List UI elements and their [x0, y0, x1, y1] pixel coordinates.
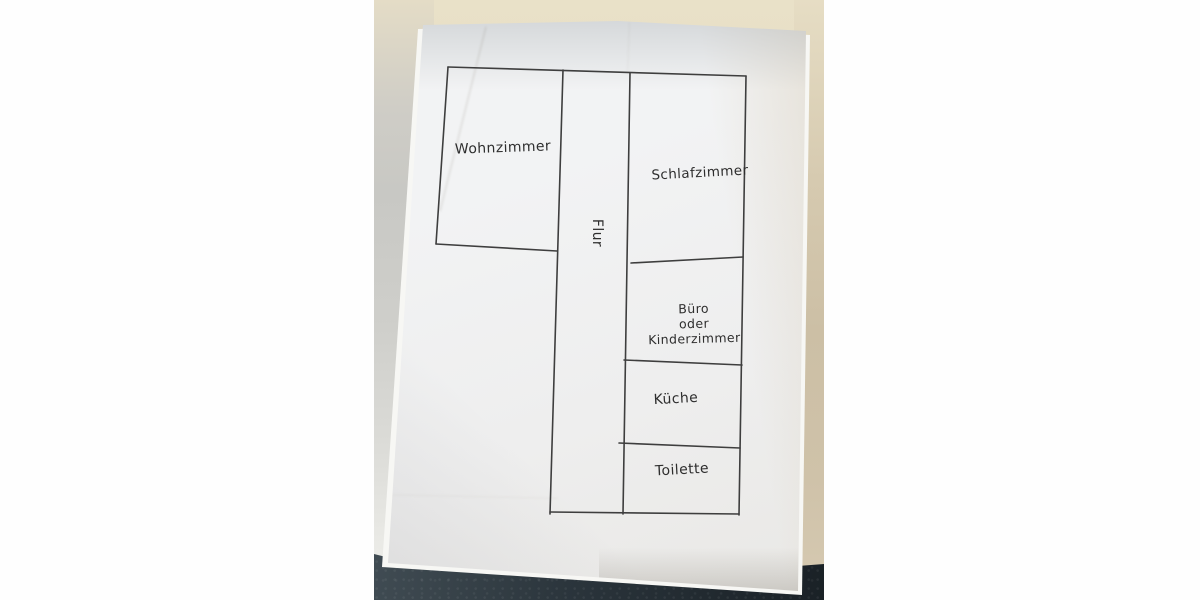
- paper-crease: [378, 494, 558, 499]
- room-label-buero-line3: Kinderzimmer: [642, 330, 746, 348]
- paper-crease: [627, 22, 630, 74]
- screenshot-canvas: Wohnzimmer Flur Schlafzimmer Büro oder K…: [0, 0, 1200, 600]
- room-label-flur-text: Flur: [588, 219, 603, 247]
- floor-plan-photo: Wohnzimmer Flur Schlafzimmer Büro oder K…: [374, 0, 824, 600]
- paper-sheet: [374, 0, 824, 600]
- paper-crease: [439, 27, 487, 212]
- room-label-kueche: Küche: [645, 390, 708, 409]
- room-label-flur: Flur: [580, 215, 612, 251]
- room-label-buero-oder-kinderzimmer: Büro oder Kinderzimmer: [641, 300, 746, 348]
